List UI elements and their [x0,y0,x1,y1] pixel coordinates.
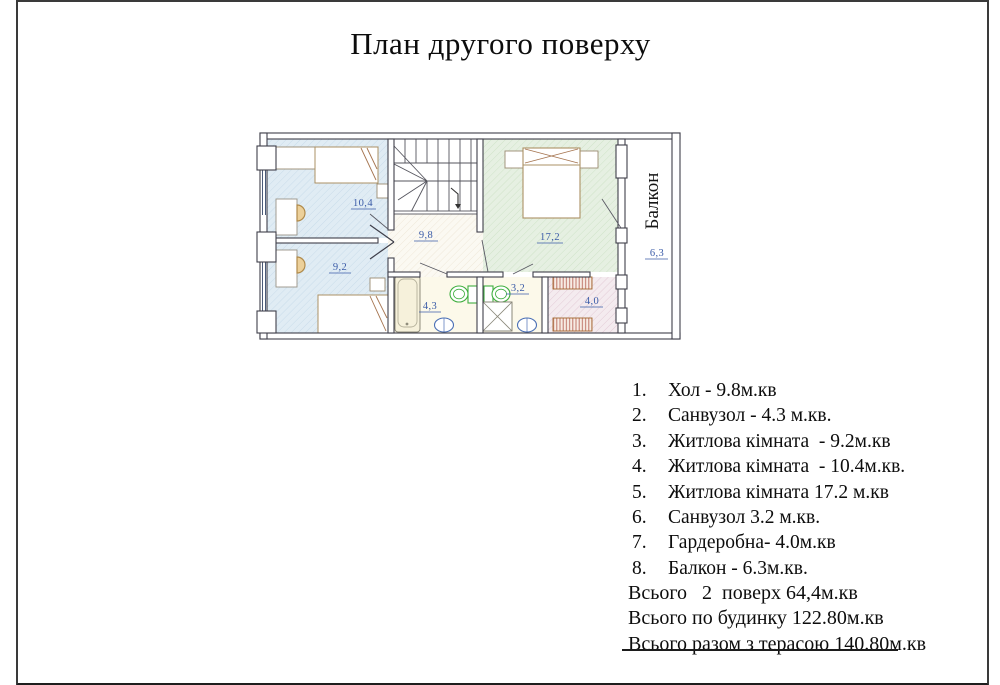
list-item: 4.Житлова кімната - 10.4м.кв. [632,456,905,481]
toilet-icon [468,286,477,303]
room-172-label: 17,2 [540,232,560,243]
total-floor: Всього 2 поверх 64,4м.кв [628,582,926,607]
list-item: 2.Санвузол - 4.3 м.кв. [632,405,905,430]
hall-label: 9,8 [419,230,433,241]
floor-plan-page: План другого поверху [0,0,1000,685]
list-item: 3.Житлова кімната - 9.2м.кв [632,431,905,456]
wardrobe-label: 4,0 [585,296,599,307]
wardrobe-cabinet [276,147,315,169]
list-item: 7.Гардеробна- 4.0м.кв [632,532,905,557]
balcony-area-label: 6,3 [650,248,664,259]
desk [276,199,297,235]
total-house: Всього по будинку 122.80м.кв [628,607,926,632]
total-with-terrace: Всього разом з терасою 140.80м.кв [628,633,926,658]
room-92-label: 9,2 [333,262,347,273]
list-item: 1.Хол - 9.8м.кв [632,380,905,405]
page-title: План другого поверху [16,26,985,62]
nightstand [505,151,523,168]
bed-single [318,295,388,333]
bath-32-label: 3,2 [511,283,525,294]
wall-pier [257,311,276,333]
list-item: 8.Балкон - 6.3м.кв. [632,558,905,583]
nightstand [580,151,598,168]
nightstand [370,278,385,291]
totals-block: Всього 2 поверх 64,4м.кв Всього по будин… [628,582,926,658]
desk [276,250,297,287]
floor-plan-drawing: 10,4 9,2 9,8 17,2 4,3 3,2 4,0 6,3 Балкон [248,128,684,344]
bed-double [523,148,580,218]
legend-list: 1.Хол - 9.8м.кв 2.Санвузол - 4.3 м.кв. 3… [632,380,905,583]
totals-underline [622,649,898,651]
room-104-label: 10,4 [353,198,373,209]
list-item: 5.Житлова кімната 17.2 м.кв [632,482,905,507]
wall-pier [257,232,276,262]
list-item: 6.Санвузол 3.2 м.кв. [632,507,905,532]
wall-pier [257,146,276,170]
balcony-label: Балкон [642,173,663,230]
bath-43-label: 4,3 [423,301,437,312]
